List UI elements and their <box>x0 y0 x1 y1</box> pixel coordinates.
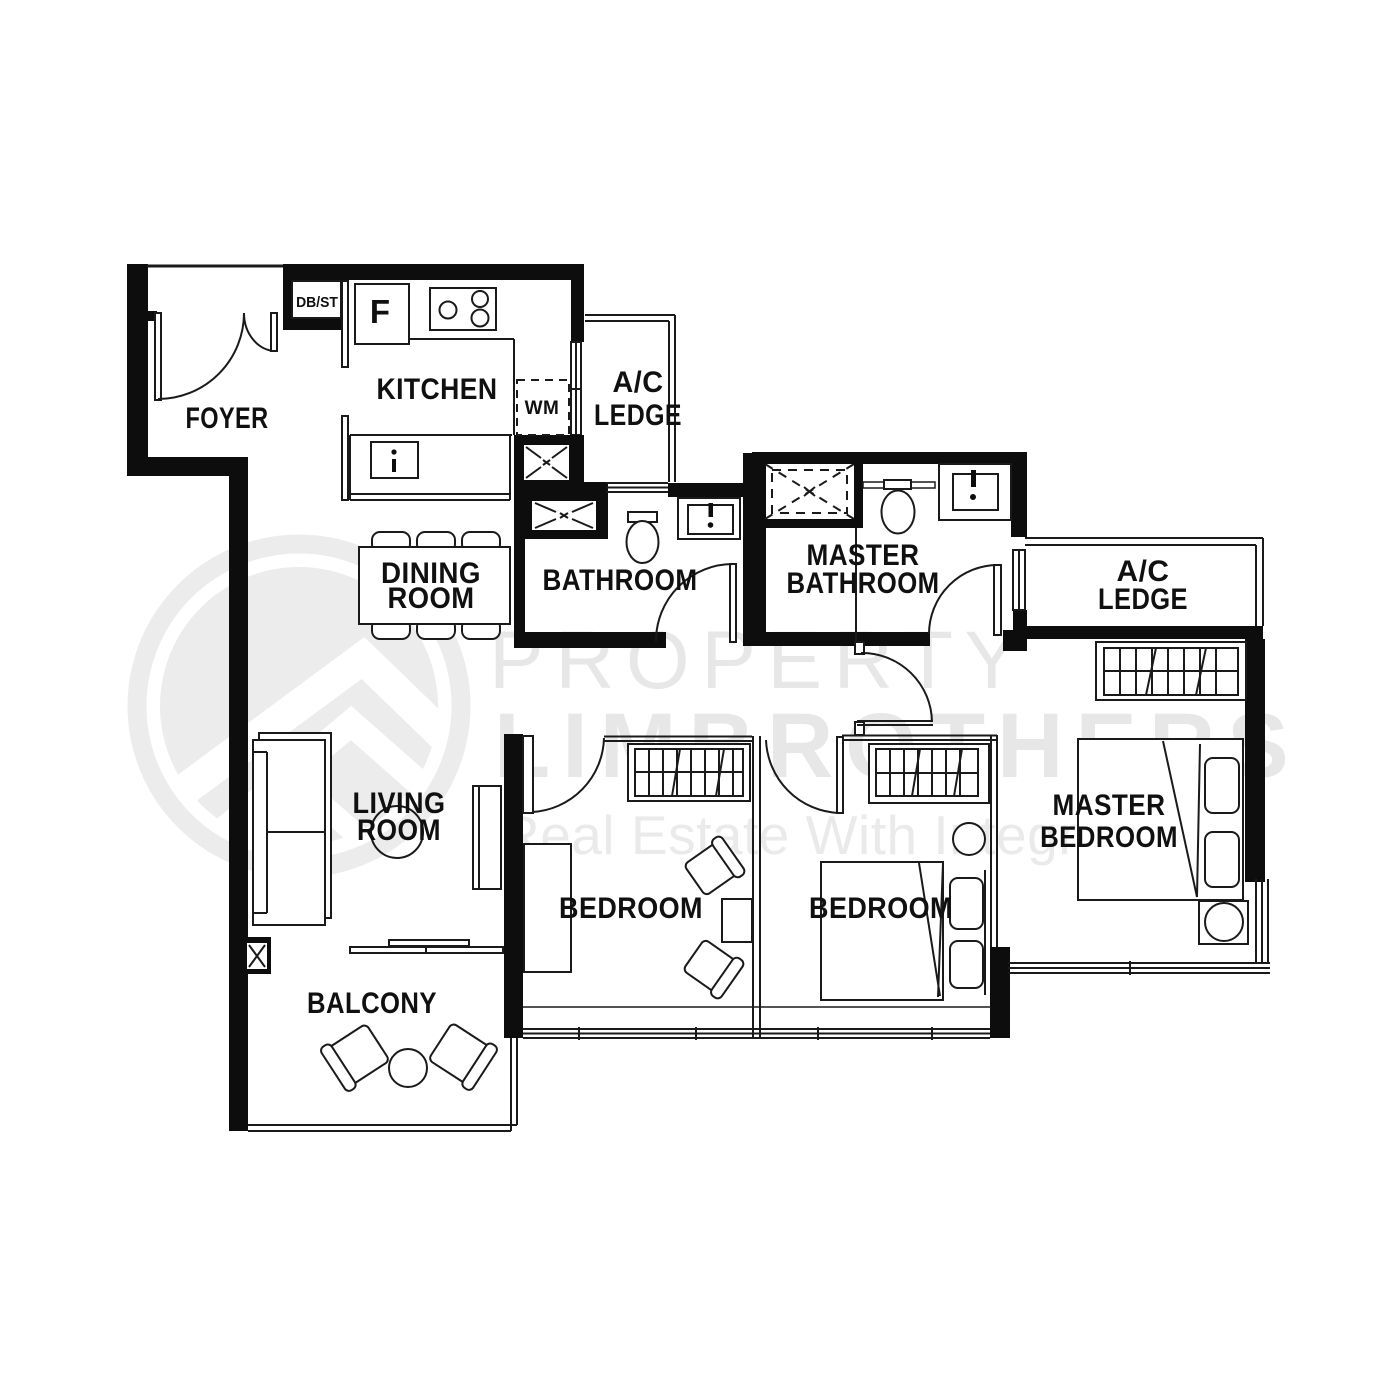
svg-text:Real Estate With Integrity: Real Estate With Integrity <box>500 804 1134 866</box>
svg-text:ROOM: ROOM <box>387 582 474 615</box>
svg-text:MASTER: MASTER <box>1053 788 1166 821</box>
svg-text:FOYER: FOYER <box>186 401 269 434</box>
svg-text:LEDGE: LEDGE <box>594 398 682 432</box>
svg-text:BALCONY: BALCONY <box>307 986 437 1019</box>
svg-text:A/C: A/C <box>613 365 664 399</box>
svg-text:WM: WM <box>525 398 560 419</box>
svg-text:BATHROOM: BATHROOM <box>542 563 697 596</box>
svg-text:DB/ST: DB/ST <box>296 295 338 312</box>
svg-text:BEDROOM: BEDROOM <box>559 892 703 926</box>
svg-text:KITCHEN: KITCHEN <box>376 373 497 407</box>
svg-text:BEDROOM: BEDROOM <box>809 892 953 926</box>
svg-text:F: F <box>370 293 390 330</box>
svg-text:BATHROOM: BATHROOM <box>786 566 939 599</box>
svg-text:BEDROOM: BEDROOM <box>1040 820 1178 853</box>
svg-text:ROOM: ROOM <box>357 812 441 846</box>
svg-text:LEDGE: LEDGE <box>1098 582 1188 615</box>
